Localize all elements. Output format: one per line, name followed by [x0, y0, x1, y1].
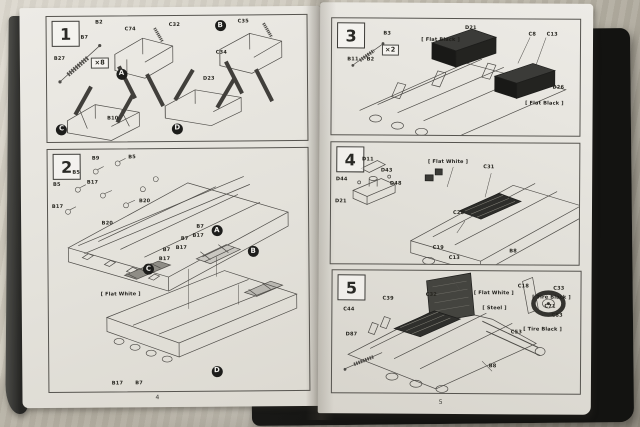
part-label: B5 [128, 155, 136, 161]
part-label: C18 [518, 285, 529, 291]
step-1-panel: 1 [45, 14, 308, 143]
part-label: B5 [53, 183, 61, 189]
part-label: B17 [52, 205, 63, 211]
paint-note: [ Tire Black ] [532, 295, 571, 301]
part-label: D43 [381, 169, 393, 175]
part-label: C53 [511, 330, 522, 336]
part-label: B2 [95, 21, 103, 27]
part-label: D87 [346, 333, 358, 339]
part-label: C32 [169, 23, 180, 29]
part-label: C13 [547, 32, 558, 38]
paint-note: [ Flat White ] [474, 291, 514, 297]
part-label: B7 [135, 382, 143, 388]
part-label: B8 [509, 249, 517, 255]
part-label: B2 [367, 58, 375, 64]
paint-note: [ Flat White ] [101, 292, 141, 298]
assembly-callout: C [143, 264, 154, 275]
part-label: B7 [196, 225, 204, 231]
part-label: D21 [335, 200, 347, 206]
assembly-callout: A [211, 225, 222, 236]
step-number: 3 [337, 22, 365, 48]
part-label: C32 [426, 293, 437, 299]
quantity-box: ×8 [91, 58, 108, 69]
part-label: D48 [390, 182, 402, 188]
assembly-callout: B [215, 20, 226, 31]
paint-note: [ Flat Black ] [421, 37, 460, 43]
part-label: B20 [139, 199, 150, 205]
left-page: 1 [19, 6, 323, 408]
part-label: C74 [125, 27, 136, 33]
part-label: D26 [552, 86, 564, 92]
assembly-callout: B [248, 246, 259, 257]
part-label: C39 [383, 296, 394, 302]
part-label: B9 [92, 157, 100, 163]
part-label: B11 [347, 58, 358, 64]
part-label: C71 [544, 304, 555, 310]
part-label: C83 [552, 314, 563, 320]
part-label: C35 [238, 19, 249, 25]
assembly-callout: A [116, 68, 127, 79]
part-label: D23 [203, 77, 215, 83]
assembly-callout: D [211, 366, 222, 377]
step-number: 1 [52, 21, 80, 47]
part-label: B20 [102, 221, 113, 227]
step-5-panel: 5 [331, 269, 582, 395]
part-label: B5 [72, 171, 80, 177]
part-label: B8 [489, 364, 497, 370]
part-label: C8 [528, 32, 536, 38]
step-3-panel: 3 [330, 17, 581, 137]
assembly-callout: C [56, 124, 67, 135]
step-2-panel: 2 [47, 147, 311, 393]
step-4-panel: 4 [330, 141, 581, 266]
paint-note: [ Flat White ] [428, 160, 468, 166]
photo-of-instruction-booklet: 1 [0, 0, 640, 427]
part-label: B17 [112, 382, 123, 388]
part-label: B3 [383, 31, 391, 37]
right-page: 3 [318, 2, 594, 415]
part-label: B7 [80, 35, 88, 41]
step-number: 5 [337, 274, 365, 300]
part-label: B17 [159, 257, 170, 263]
left-page-number: 4 [155, 394, 159, 401]
part-label: B17 [176, 246, 187, 252]
part-label: B7 [181, 237, 189, 243]
part-label: B17 [87, 181, 98, 187]
part-label: B17 [193, 233, 204, 239]
part-label: D11 [362, 157, 374, 163]
part-label: B10 [107, 116, 118, 122]
part-label: D44 [336, 177, 348, 183]
paint-note: [ Steel ] [482, 307, 506, 313]
part-label: C34 [216, 51, 227, 57]
quantity-box: ×2 [382, 44, 399, 55]
part-label: C31 [483, 165, 494, 171]
paint-note: [ Tire Black ] [523, 327, 562, 333]
part-label: D21 [465, 26, 477, 32]
part-label: B27 [54, 57, 65, 63]
assembly-callout: D [172, 123, 183, 134]
part-label: C13 [449, 255, 460, 261]
part-label: C28 [453, 211, 464, 217]
part-label: C19 [433, 246, 444, 252]
step-number: 4 [336, 146, 364, 172]
part-label: B7 [163, 248, 171, 254]
step-3-diagram [331, 18, 580, 136]
right-page-number: 5 [439, 399, 443, 406]
part-label: C44 [343, 308, 354, 314]
paint-note: [ Flat Black ] [525, 102, 564, 108]
part-label: C33 [553, 286, 564, 292]
